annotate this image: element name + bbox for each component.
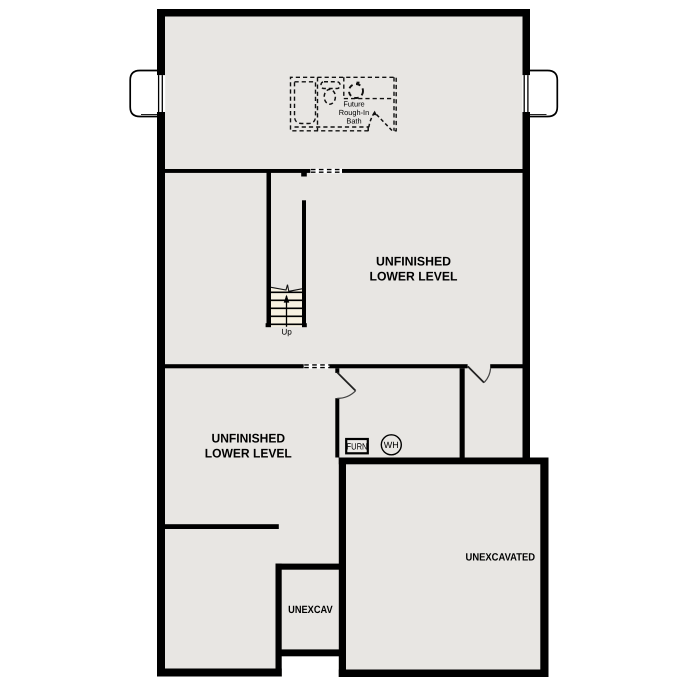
svg-text:Bath: Bath [346,116,361,125]
svg-text:UNEXCAVATED: UNEXCAVATED [466,552,536,564]
svg-text:UNEXCAV: UNEXCAV [288,604,333,616]
svg-text:Up: Up [281,328,292,337]
svg-text:UNFINISHED: UNFINISHED [212,432,286,446]
svg-text:LOWER LEVEL: LOWER LEVEL [370,269,458,283]
svg-text:FURN: FURN [347,442,368,452]
svg-text:WH: WH [384,440,399,450]
svg-text:UNFINISHED: UNFINISHED [376,254,451,268]
svg-text:LOWER LEVEL: LOWER LEVEL [205,447,292,461]
